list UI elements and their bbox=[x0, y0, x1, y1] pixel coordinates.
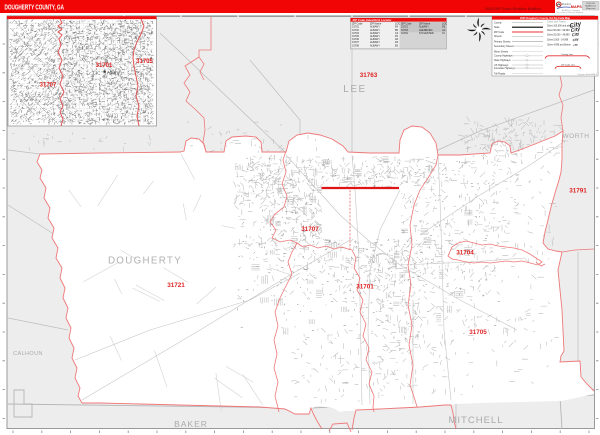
svg-text:ZIP Code Line: ZIP Code Line bbox=[561, 65, 576, 67]
svg-text:31763: 31763 bbox=[360, 72, 378, 79]
svg-text:MITCHELL: MITCHELL bbox=[449, 415, 504, 426]
svg-text:31707: 31707 bbox=[40, 83, 57, 89]
svg-text:County: County bbox=[494, 21, 502, 24]
svg-text:BAKER: BAKER bbox=[174, 419, 208, 429]
svg-text:2025 ZIP Code Redline Edition: 2025 ZIP Code Redline Edition bbox=[485, 6, 542, 11]
svg-text:ZIP Code: ZIP Code bbox=[494, 31, 505, 34]
svg-text:Streets: Streets bbox=[494, 35, 502, 38]
svg-text:Copyright MarketMAPS: Copyright MarketMAPS bbox=[577, 73, 597, 76]
svg-text:WORTH: WORTH bbox=[563, 133, 590, 140]
svg-text:Maps.com: Maps.com bbox=[586, 8, 596, 10]
svg-text:ZIP Code Index/Grid Locator: ZIP Code Index/Grid Locator bbox=[353, 18, 393, 22]
svg-text:Toll Roads: Toll Roads bbox=[494, 72, 506, 75]
svg-text:31705: 31705 bbox=[136, 59, 153, 65]
svg-text:Your Leader In Business Mappin: Your Leader In Business Mapping bbox=[556, 12, 583, 14]
svg-text:MAPS: MAPS bbox=[571, 5, 582, 9]
svg-text:31707: 31707 bbox=[301, 226, 319, 233]
svg-text:31791: 31791 bbox=[569, 188, 587, 195]
svg-text:CALHOUN: CALHOUN bbox=[13, 351, 43, 357]
svg-text:31708: 31708 bbox=[352, 44, 360, 47]
svg-text:DOUGHERTY: DOUGHERTY bbox=[108, 256, 182, 267]
svg-text:Primary Streets: Primary Streets bbox=[494, 40, 511, 43]
svg-text:State: State bbox=[494, 26, 500, 29]
svg-text:County Highways: County Highways bbox=[494, 55, 513, 58]
svg-text:ALBANY: ALBANY bbox=[370, 44, 380, 47]
svg-text:Cities 5,000 - 24,999: Cities 5,000 - 24,999 bbox=[547, 38, 569, 41]
svg-text:31791: 31791 bbox=[401, 32, 409, 35]
svg-text:31701: 31701 bbox=[96, 63, 113, 69]
svg-text:31704: 31704 bbox=[456, 250, 474, 257]
svg-text:31721: 31721 bbox=[167, 282, 185, 289]
svg-text:31705: 31705 bbox=[469, 329, 487, 336]
svg-text:Minor Streets: Minor Streets bbox=[494, 50, 509, 53]
svg-text:DOUGHERTY COUNTY, GA: DOUGHERTY COUNTY, GA bbox=[5, 2, 65, 11]
svg-text:Secondary Streets: Secondary Streets bbox=[494, 45, 514, 48]
svg-text:LEE: LEE bbox=[343, 84, 366, 95]
svg-text:Cities 25,000 - 49,999: Cities 25,000 - 49,999 bbox=[547, 33, 570, 36]
svg-text:Albany: Albany bbox=[107, 70, 121, 75]
svg-text:31701: 31701 bbox=[356, 284, 374, 291]
svg-text:State Highways: State Highways bbox=[494, 59, 511, 62]
svg-text:Cities and Towns: Cities and Towns bbox=[547, 20, 567, 23]
svg-text:Market: Market bbox=[562, 2, 571, 6]
svg-text:Cities 4,999 and Below: Cities 4,999 and Below bbox=[547, 43, 571, 46]
svg-text:Cities 50,000 - 99,999: Cities 50,000 - 99,999 bbox=[547, 29, 570, 32]
svg-text:SYLVESTER: SYLVESTER bbox=[419, 32, 434, 35]
svg-text:County Line: County Line bbox=[561, 53, 573, 56]
